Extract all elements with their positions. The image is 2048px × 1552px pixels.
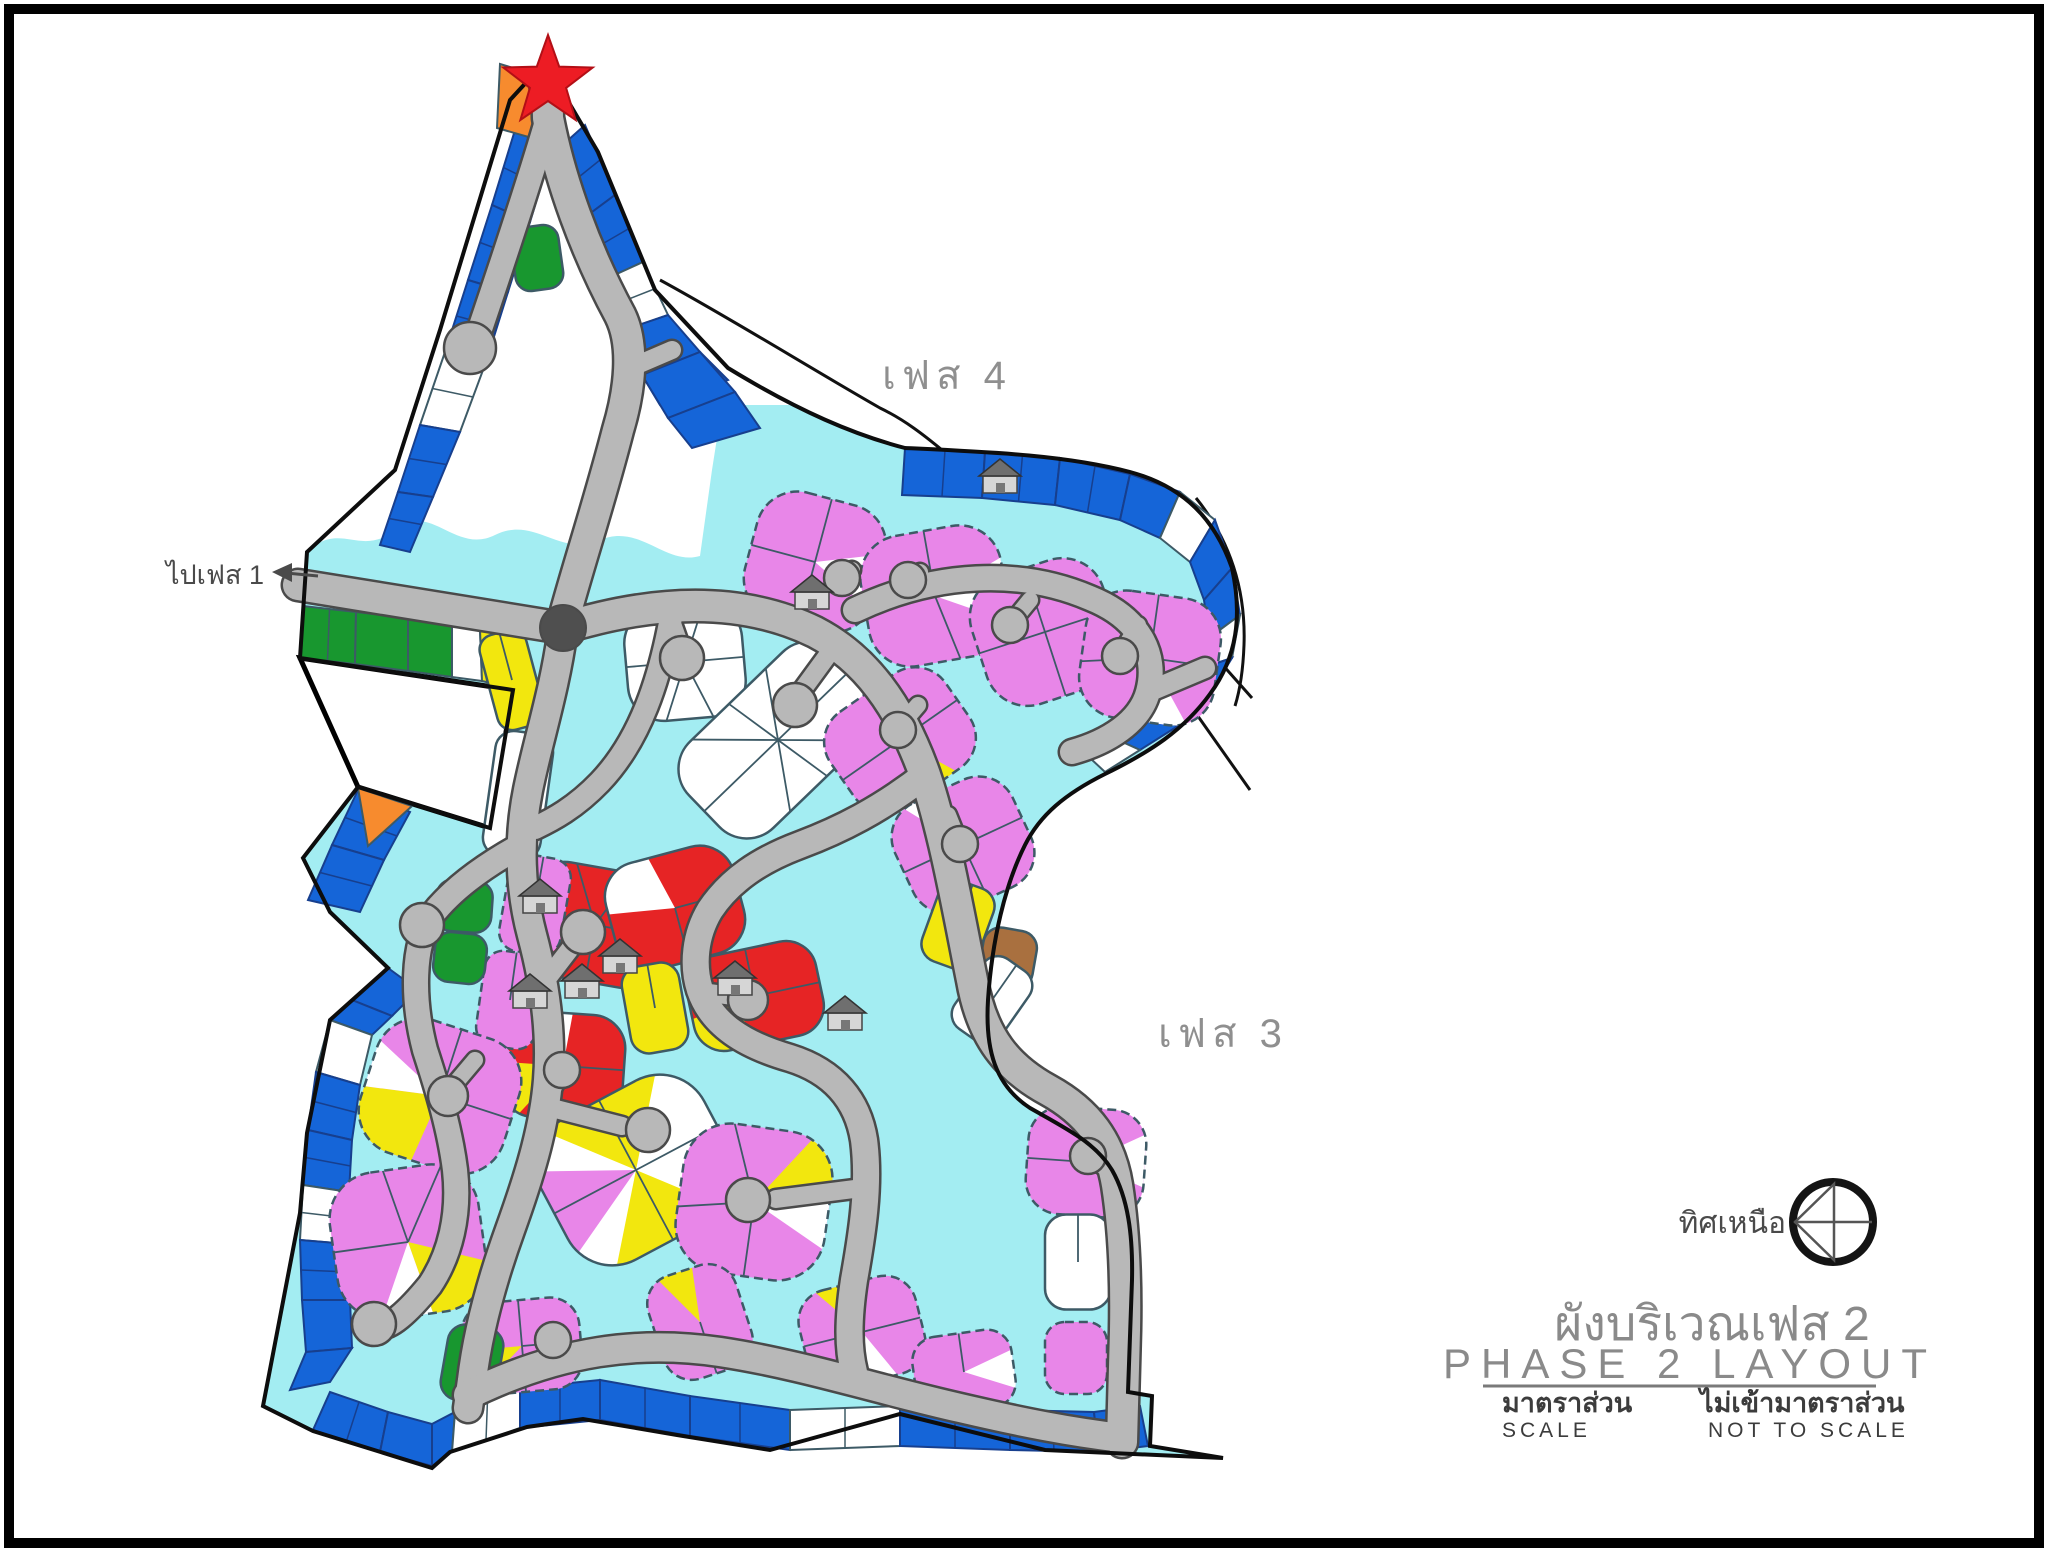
- phase-3-label: เฟส 3: [1158, 1012, 1288, 1056]
- lot-strip-segment: [408, 618, 452, 677]
- lot-cluster: [1045, 1322, 1107, 1394]
- site-plan-page: เฟส 4 เฟส 3 ไปเฟส 1 ทิศเหนือ ผังบริเวณเฟ…: [0, 0, 2048, 1552]
- title-english: PHASE 2 LAYOUT: [1443, 1340, 1937, 1387]
- to-phase1-label: ไปเฟส 1: [164, 560, 264, 590]
- culdesac-bulb: [890, 562, 926, 598]
- lot-strip-segment: [355, 612, 408, 671]
- scale-value-english: NOT TO SCALE: [1708, 1419, 1909, 1442]
- phase2-layout-drawing: เฟส 4 เฟส 3 ไปเฟส 1 ทิศเหนือ ผังบริเวณเฟ…: [0, 0, 2048, 1552]
- lot-strip-segment: [452, 624, 482, 681]
- scale-heading-thai: มาตราส่วน: [1502, 1388, 1633, 1418]
- culdesac-bulb: [726, 1178, 770, 1222]
- culdesac-bulb: [352, 1302, 396, 1346]
- culdesac-bulb: [992, 607, 1028, 643]
- culdesac-bulb: [660, 636, 704, 680]
- culdesac-bulb: [535, 1322, 571, 1358]
- scale-heading-english: SCALE: [1502, 1419, 1591, 1442]
- phase-4-label: เฟส 4: [882, 354, 1012, 398]
- culdesac-bulb: [773, 683, 817, 727]
- culdesac-bulb: [626, 1108, 670, 1152]
- culdesac-bulb: [428, 1076, 468, 1116]
- road: [776, 1188, 862, 1199]
- culdesac-bulb: [400, 903, 444, 947]
- culdesac-bulb: [1102, 638, 1138, 674]
- culdesac-bulb: [880, 712, 916, 748]
- culdesac-bulb: [544, 1052, 580, 1088]
- roundabout: [540, 605, 586, 651]
- culdesac-bulb: [444, 322, 496, 374]
- lot-cluster: [1045, 1215, 1111, 1310]
- culdesac-bulb: [942, 826, 978, 862]
- culdesac-bulb: [561, 910, 605, 954]
- north-label: ทิศเหนือ: [1679, 1207, 1786, 1240]
- scale-value-thai: ไม่เข้ามาตราส่วน: [1697, 1387, 1905, 1418]
- lot-strip-segment: [302, 1300, 352, 1352]
